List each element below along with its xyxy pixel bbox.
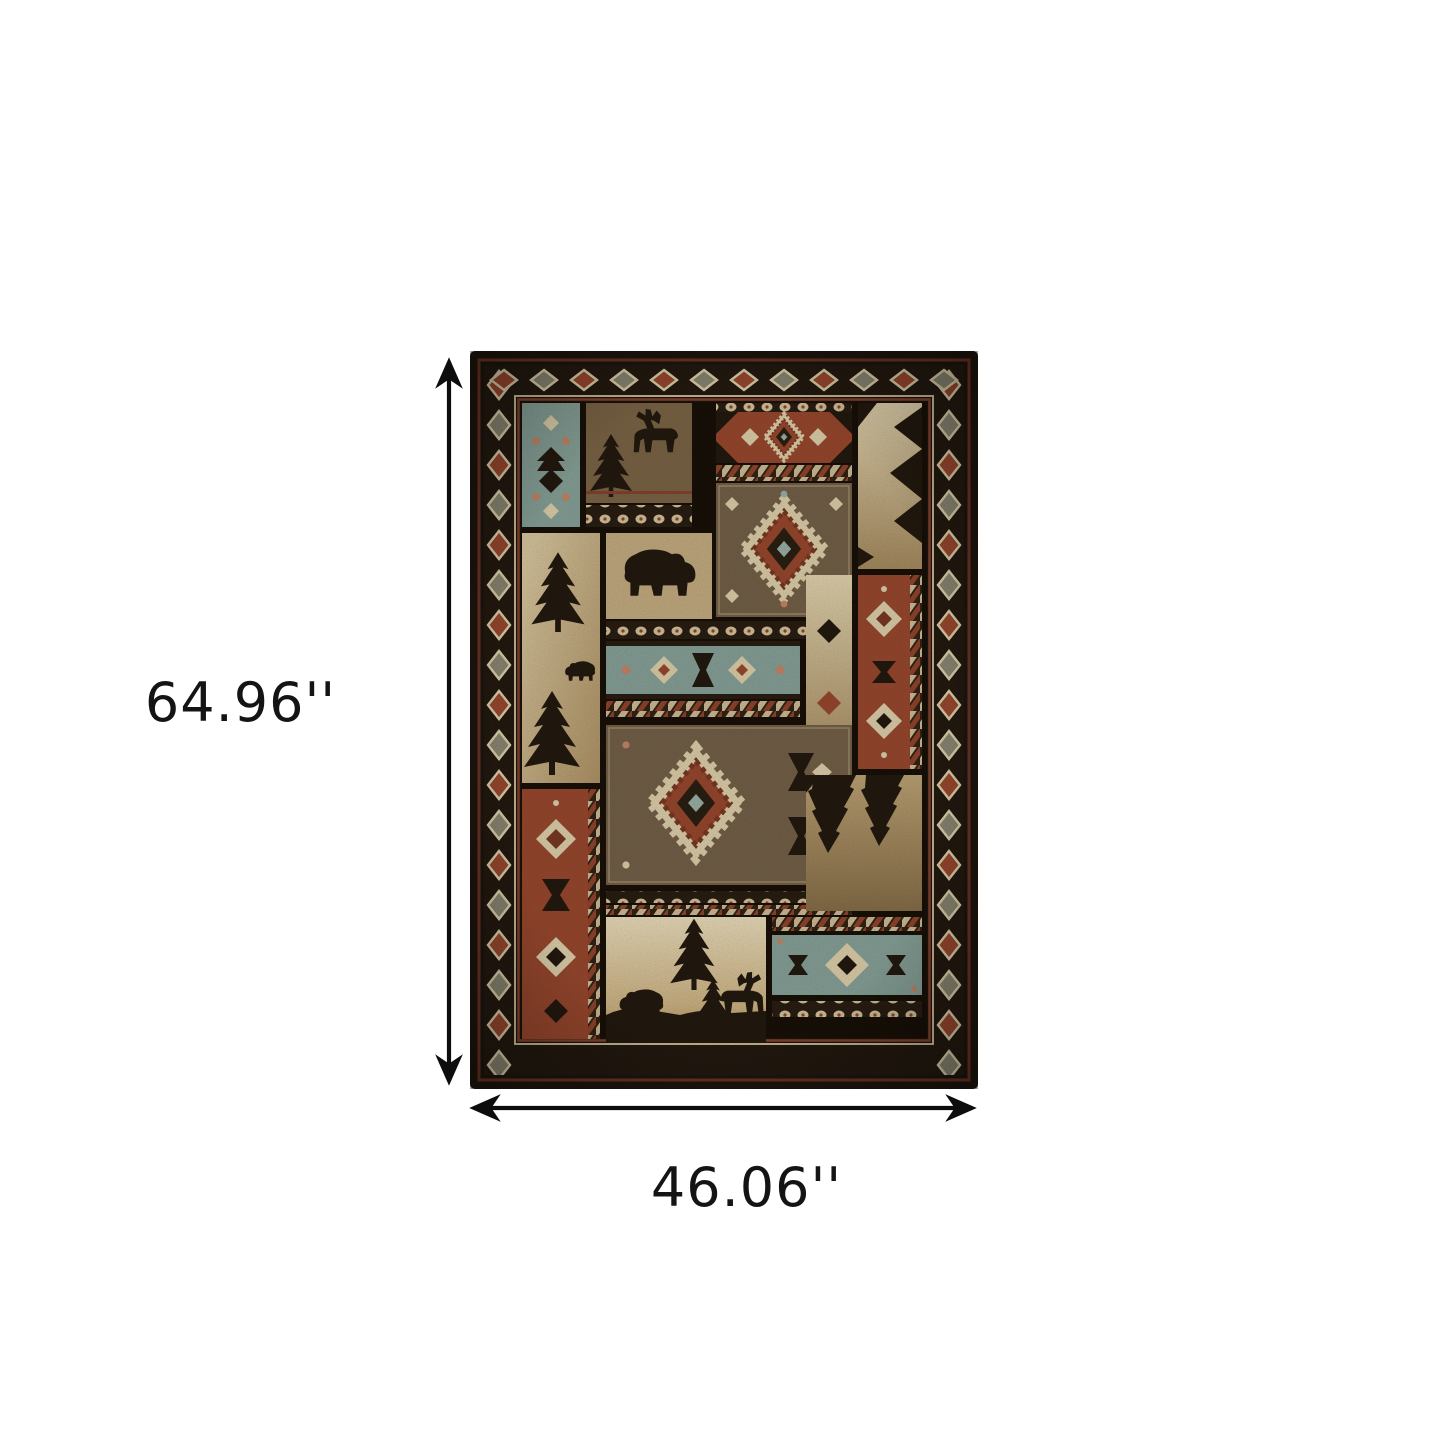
width-dimension-label: 46.06'' <box>624 1156 869 1219</box>
rug-image <box>470 351 978 1089</box>
rug-vignette <box>470 351 978 1089</box>
height-dimension-label: 64.96'' <box>118 671 363 734</box>
product-dimension-figure: 64.96'' 46.06'' <box>0 0 1445 1445</box>
